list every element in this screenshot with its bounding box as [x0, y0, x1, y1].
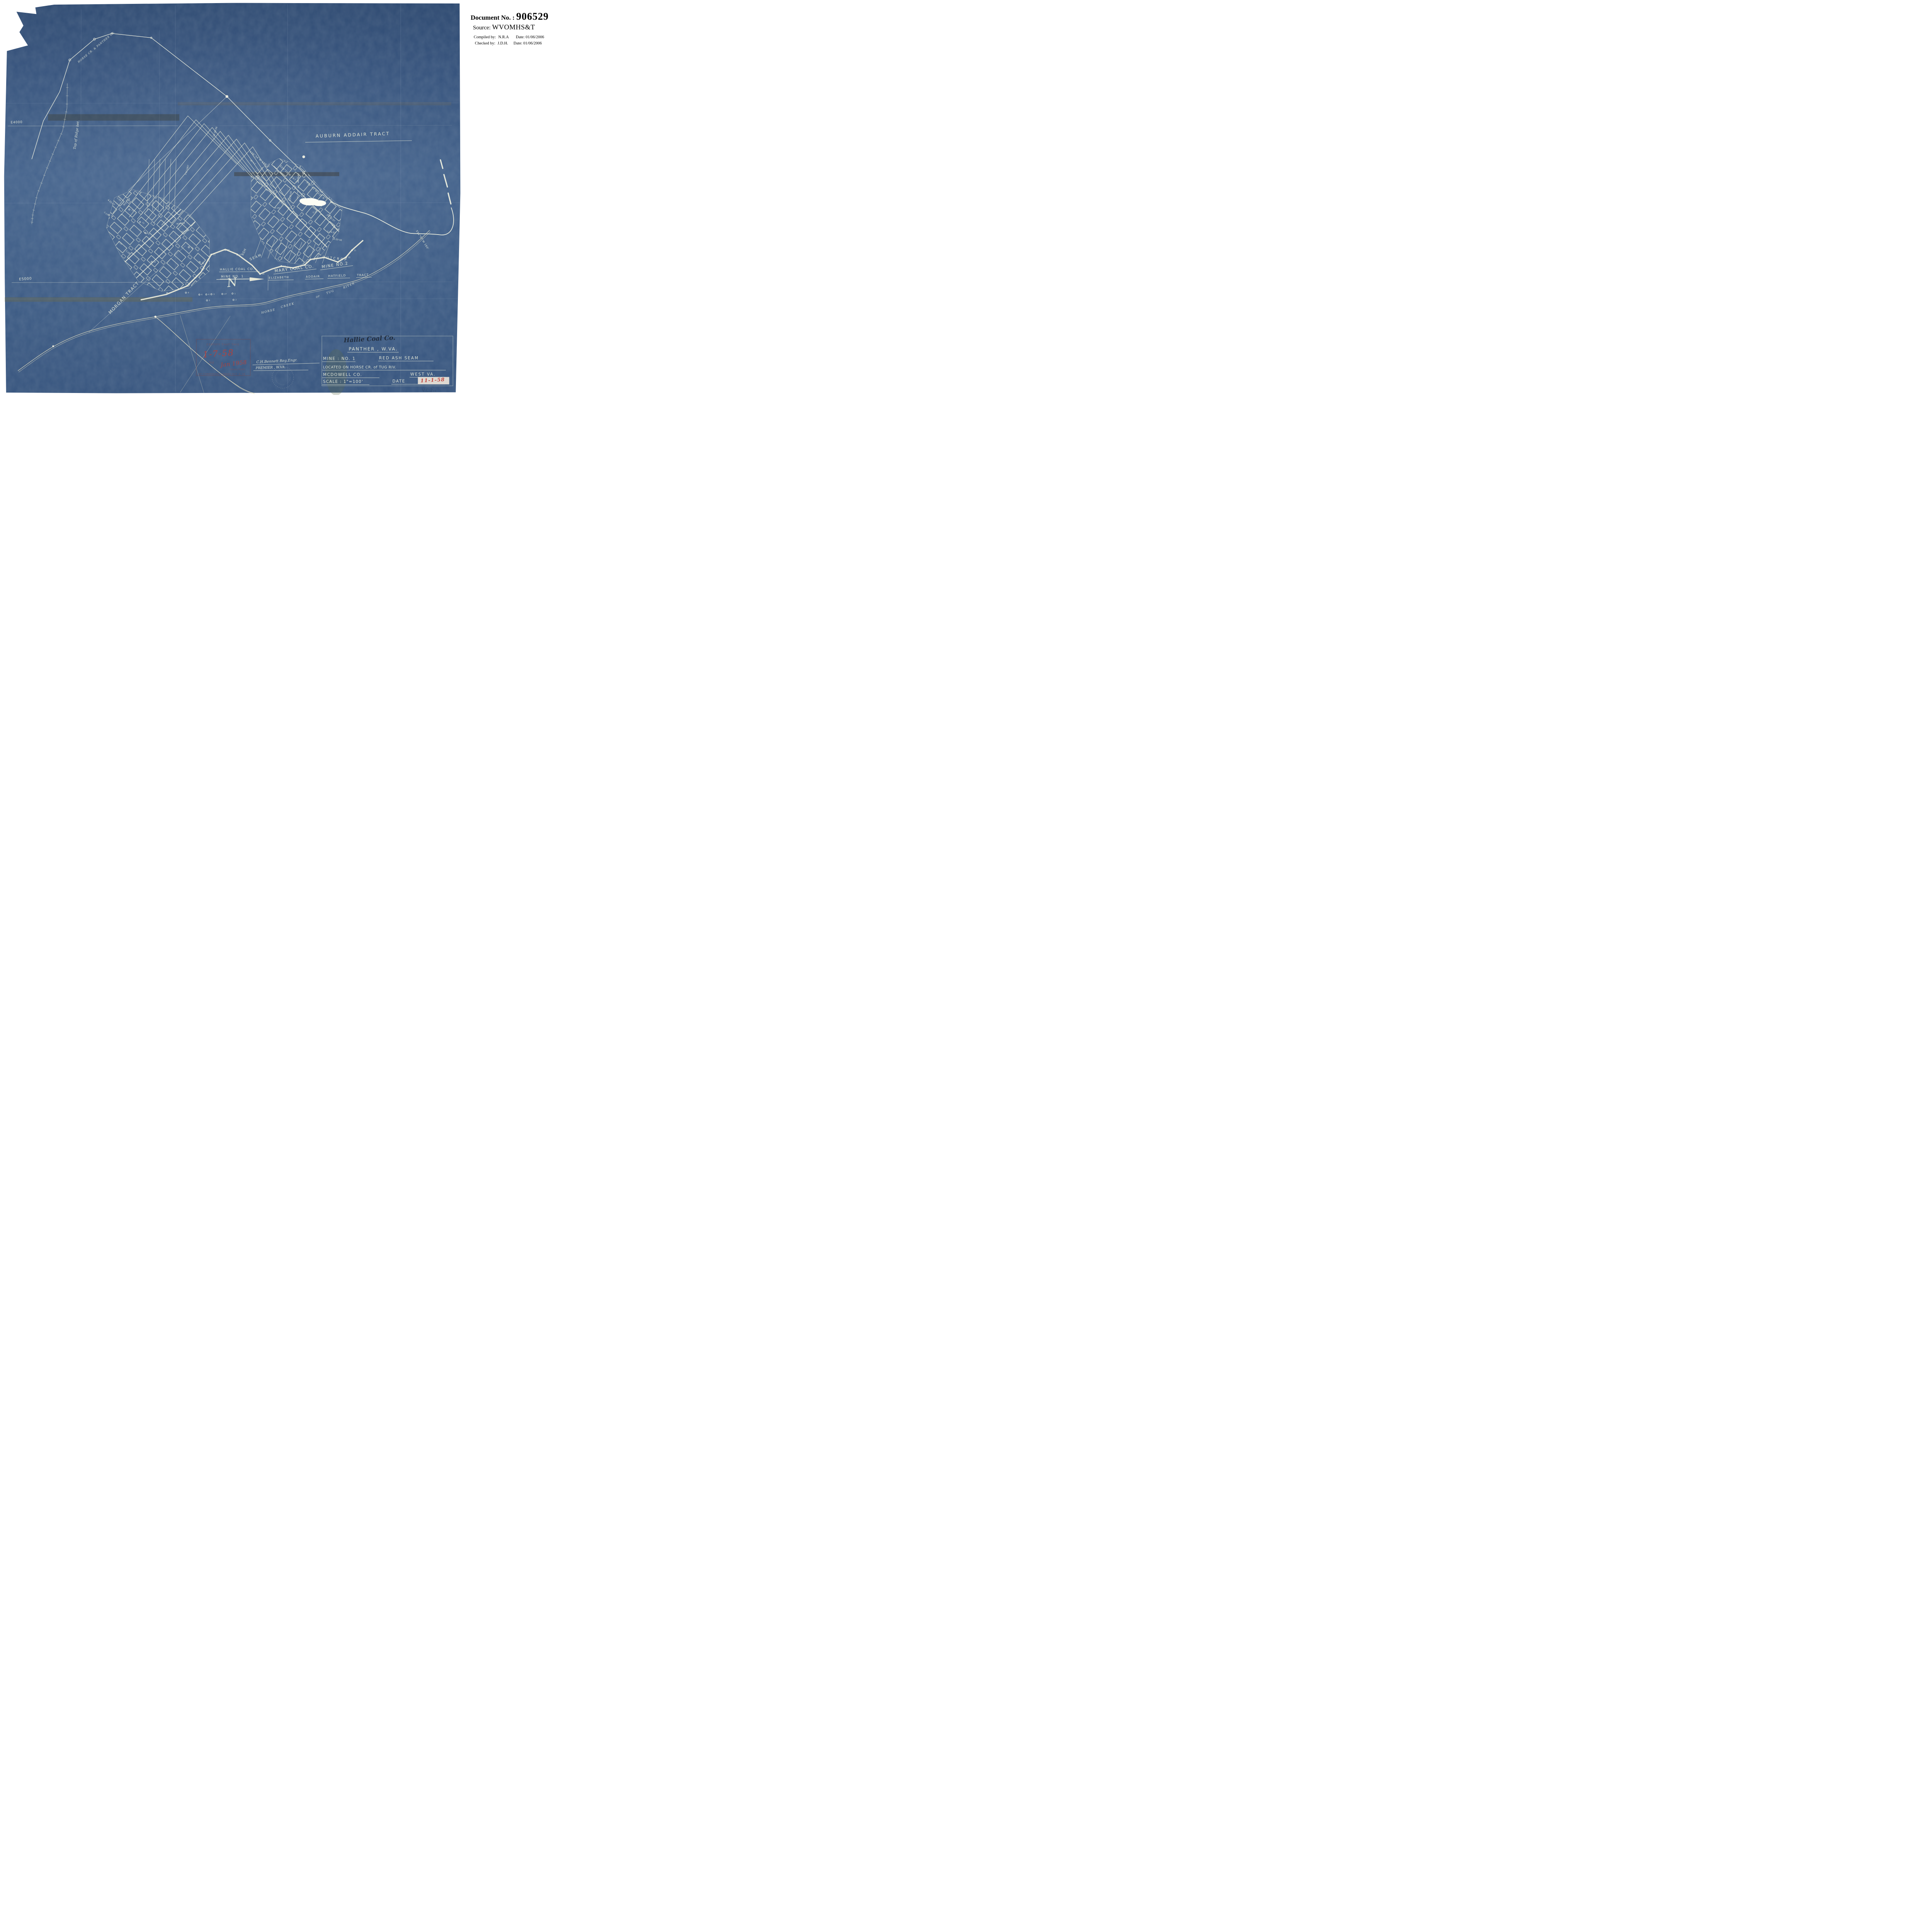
sta-17: 17	[283, 265, 286, 268]
mark-vc2: V.C.2₁₁	[422, 388, 436, 393]
sta-16: 16	[295, 267, 297, 269]
stamp-3rd: 3rd	[209, 361, 214, 364]
checked-by-value: J.D.H.	[498, 41, 508, 46]
sta-14: 14	[313, 259, 315, 261]
sta-10: 10	[154, 261, 156, 263]
sta-15: 15	[307, 264, 309, 266]
archive-header-panel	[472, 0, 556, 395]
source-value: WVOMHS&T	[492, 23, 535, 31]
stamp-commission: MY COMMISSION EXPIRES OCT. 4, 19	[198, 373, 245, 376]
elev-200: -200	[326, 214, 331, 217]
document-number-label: Document No. :	[471, 14, 515, 21]
tb-county: MCDOWELL CO.	[323, 372, 362, 377]
document-number-value: 906529	[516, 11, 549, 22]
sta-11: 11	[354, 249, 356, 252]
stamp-notary: Notary Public	[230, 368, 245, 371]
stamp-certify: CERTIFY THAT THIS	[206, 343, 239, 346]
label-addair: ADDAIR	[306, 275, 320, 279]
document-number-line: Document No. : 906529	[471, 11, 549, 22]
label-tract: TRACT	[357, 273, 369, 277]
sta-13: 13	[340, 261, 342, 264]
compiled-by-label: Compiled by:	[474, 35, 496, 39]
survey-station	[154, 316, 156, 318]
compiled-line: Compiled by:N.R.ADate: 01/06/2006	[474, 35, 544, 39]
label-hallie-coal-co: HALLIE COAL CO.	[220, 267, 255, 272]
label-elizabeth: ELIZABETH	[269, 276, 289, 280]
survey-station	[302, 155, 305, 158]
sta-4: 4	[208, 294, 209, 296]
sta-6: 6	[201, 294, 202, 296]
tb-scale: SCALE : 1"=100'	[323, 379, 363, 384]
sta-21: 21	[213, 254, 216, 256]
compiled-date-value: 01/06/2006	[526, 35, 544, 39]
label-e4000: E4000	[11, 120, 23, 124]
checked-by-label: Checked by:	[475, 41, 495, 46]
sta-27: 27	[224, 293, 226, 296]
checked-date-label: Date:	[514, 41, 522, 46]
checked-date-value: 01/06/2006	[523, 41, 542, 46]
survey-station	[226, 95, 228, 98]
source-label: Source:	[473, 25, 491, 31]
sta-5: 5	[209, 299, 210, 302]
sta-1: 1	[235, 293, 236, 295]
sta-12: 12	[348, 256, 350, 259]
compiled-by-value: N.R.A	[498, 35, 509, 39]
tb-town: PANTHER , W.VA.	[349, 346, 398, 352]
label-e5000: E5000	[19, 276, 32, 281]
compiled-date-label: Date:	[516, 35, 525, 39]
tb-date-label: DATE	[392, 379, 405, 384]
tb-mine: MINE : NO. 1	[323, 357, 355, 361]
sta-3: 3	[213, 293, 214, 296]
sta-19: 19	[239, 254, 241, 256]
sta-2: 2	[235, 299, 236, 301]
tb-located: LOCATED ON HORSE CR. of TUG RIV.	[323, 366, 396, 370]
sta-9: 9	[169, 292, 170, 294]
tb-state: WEST VA.	[410, 372, 436, 377]
checked-line: Checked by:J.D.H.Date: 01/06/2006	[475, 41, 542, 46]
scanned-blueprint-page: AUBURN ADDAIR TRACTMORGAN TRACTTop of Ri…	[0, 0, 556, 395]
sta-18: 18	[262, 273, 264, 276]
sta-8: 8	[188, 292, 189, 294]
survey-station	[52, 345, 54, 347]
tb-seam: RED ASH SEAM	[379, 356, 419, 361]
label-hatfield: HATFIELD	[328, 274, 346, 278]
sta-20: 20	[227, 249, 230, 252]
core-24: C-24	[275, 207, 280, 209]
source-line: Source: WVOMHS&T	[473, 23, 535, 31]
